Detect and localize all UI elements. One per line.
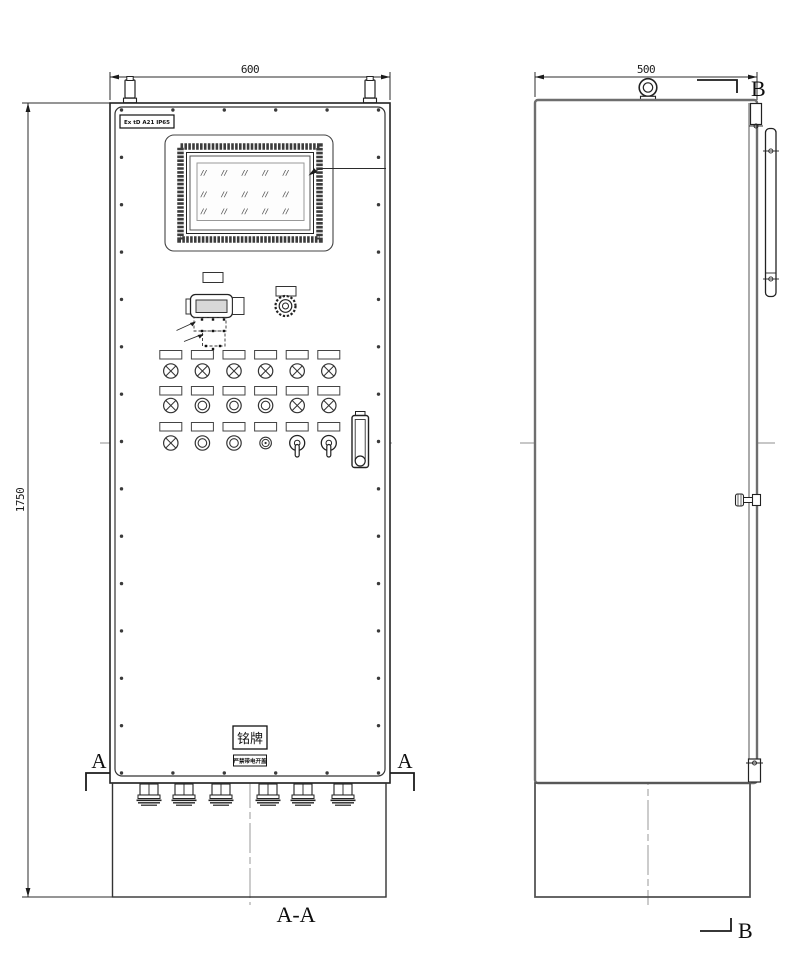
cabinet-base-side [535, 783, 750, 897]
glass-hatch-mark: // [221, 208, 229, 216]
section-b-label: B [751, 76, 766, 101]
door-handle [352, 412, 369, 468]
glass-hatch-mark: // [282, 208, 290, 216]
control-label-plate [223, 387, 245, 396]
glass-hatch-mark: // [262, 169, 270, 177]
screw [120, 440, 123, 443]
view-title: A-A [276, 902, 315, 927]
screw [377, 345, 380, 348]
glass-hatch-mark: // [282, 169, 290, 177]
screw [325, 108, 328, 111]
cabinet-technical-drawing: 600 1750 Ex tD A21 IP65 [0, 0, 790, 976]
control-label-plate [191, 387, 213, 396]
screw [120, 108, 123, 111]
cable-glands [137, 784, 356, 805]
section-marker-b-bottom: B [700, 918, 753, 943]
glass-hatch-mark: // [241, 169, 249, 177]
ex-marking-text: Ex tD A21 IP65 [124, 120, 170, 126]
screw [120, 250, 123, 253]
side-view: 500 [535, 63, 779, 943]
screw [171, 108, 174, 111]
control-label-plate [318, 423, 340, 432]
dim-height-value: 1750 [14, 488, 27, 513]
warning-text: 严禁带电开盖 [232, 757, 267, 765]
screw [171, 771, 174, 774]
screw [377, 250, 380, 253]
selector-lever [295, 445, 299, 458]
lifting-bolt-left [124, 77, 137, 103]
section-marker-a-left: A [86, 749, 110, 791]
glass-hatch-mark: // [221, 169, 229, 177]
drawing-canvas: 600 1750 Ex tD A21 IP65 [0, 0, 790, 976]
lifting-bolt-right [364, 77, 377, 103]
cable-gland-flange [210, 795, 232, 799]
screw [274, 108, 277, 111]
screw [377, 629, 380, 632]
push-button [227, 436, 241, 450]
glass-hatch-mark: // [241, 208, 249, 216]
glass-hatch-mark: // [282, 191, 290, 199]
push-button [195, 436, 209, 450]
screw [120, 487, 123, 490]
screw [120, 298, 123, 301]
control-label-plate [255, 351, 277, 360]
screw [377, 771, 380, 774]
control-label-plate [160, 387, 182, 396]
dim-width-600: 600 [110, 63, 390, 100]
control-label-plate [223, 423, 245, 432]
cable-gland-flange [292, 795, 314, 799]
glass-hatch-mark: // [262, 191, 270, 199]
cable-gland-flange [138, 795, 160, 799]
screw [120, 156, 123, 159]
screw [377, 392, 380, 395]
screw [120, 392, 123, 395]
screw [377, 298, 380, 301]
control-label-plate [286, 423, 308, 432]
screw [377, 487, 380, 490]
control-label-plate [255, 423, 277, 432]
section-b-label: B [738, 918, 753, 943]
screw [377, 108, 380, 111]
glass-hatch-mark: // [262, 208, 270, 216]
small-button-dot [265, 442, 267, 444]
control-label-plate [286, 387, 308, 396]
control-label-plate [318, 351, 340, 360]
glass-hatch-mark: // [221, 191, 229, 199]
control-label-plate [255, 387, 277, 396]
push-button [227, 398, 241, 412]
section-marker-a-right: A [390, 749, 414, 791]
screw [120, 582, 123, 585]
section-a-label: A [397, 749, 413, 773]
dim-depth-value: 500 [637, 63, 655, 76]
screw [377, 677, 380, 680]
screw [377, 203, 380, 206]
selector-lever [327, 445, 331, 458]
control-label-plate [160, 351, 182, 360]
dim-height-1750: 1750 [14, 103, 115, 897]
glass-hatch-mark: // [200, 169, 208, 177]
nameplate-text: 铭牌 [237, 731, 263, 747]
glass-hatch-mark: // [200, 191, 208, 199]
push-button [258, 398, 272, 412]
screw [377, 156, 380, 159]
control-label-plate [191, 423, 213, 432]
front-view: 600 1750 Ex tD A21 IP65 [14, 63, 414, 927]
cable-gland-flange [173, 795, 195, 799]
screw [120, 629, 123, 632]
screw [120, 771, 123, 774]
section-a-label: A [91, 749, 107, 773]
control-label-plate [160, 423, 182, 432]
control-label-plate [191, 351, 213, 360]
glass-hatch-mark: // [200, 208, 208, 216]
glass-hatch-mark: // [241, 191, 249, 199]
screw [223, 771, 226, 774]
dim-width-value: 600 [241, 63, 259, 76]
screw [377, 582, 380, 585]
screw [377, 535, 380, 538]
cable-gland-flange [332, 795, 354, 799]
screw [120, 345, 123, 348]
screw [120, 535, 123, 538]
meter-label-plate [203, 273, 223, 283]
section-marker-b-top: B [697, 76, 766, 101]
bottom-hinge [746, 759, 763, 782]
warning-plate: 严禁带电开盖 [232, 755, 267, 766]
cable-gland-flange [257, 795, 279, 799]
rotary-label-plate [276, 287, 296, 297]
screw [377, 724, 380, 727]
rotary-switch [276, 287, 297, 317]
screw [325, 771, 328, 774]
push-button [195, 398, 209, 412]
control-label-plate [318, 387, 340, 396]
ex-marking-plate: Ex tD A21 IP65 [120, 115, 174, 128]
cabinet-body-side [535, 100, 757, 783]
screw [377, 440, 380, 443]
screw [120, 203, 123, 206]
screw [120, 677, 123, 680]
control-label-plate [286, 351, 308, 360]
screw [120, 724, 123, 727]
control-label-plate [223, 351, 245, 360]
screw [274, 771, 277, 774]
nameplate: 铭牌 [233, 726, 267, 749]
screw [223, 108, 226, 111]
